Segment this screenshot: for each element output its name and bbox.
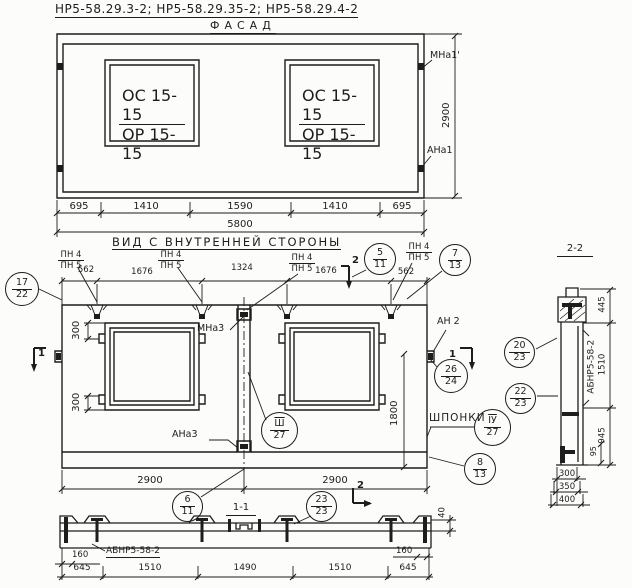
balloon-bottom: 11 [370,260,390,271]
section-1-1-heading: 1-1 [226,503,256,516]
beam-label-2-2: АБНР5-58-2 [587,332,596,402]
facade-dim-695-right: 695 [382,202,422,213]
window2-mark-top: ОС 15-15 [299,86,365,125]
facade-dim-1410-left: 1410 [126,202,166,213]
anchor-label-ana1: АНа1 [427,146,453,156]
inner-dim-1676-right: 1676 [310,267,342,276]
s11-dim-1490: 1490 [225,564,265,573]
facade-heading: ФАСАД [210,20,276,34]
offset-dim-300-top: 300 [72,315,83,345]
s22-dim-95: 95 [590,440,598,462]
balloon-III-27: Ш 27 [261,412,298,449]
sheet-title: НР5-58.29.3-2; НР5-58.29.35-2; НР5-58.29… [55,3,358,18]
balloon-IV-27: ІУ 27 [474,409,511,446]
balloon-bottom: 13 [470,470,490,481]
balloon-26-24: 26 24 [434,359,468,393]
half-width-dim-right: 2900 [315,476,355,487]
opening-height-dim: 1800 [390,393,401,433]
s22-dim-350: 350 [552,483,582,492]
s22-dim-400: 400 [552,496,582,505]
balloon-bottom: 23 [510,399,530,410]
section-2-2-heading: 2-2 [557,244,593,257]
window2-mark-bottom: ОР 15-15 [299,125,365,163]
balloon-bottom: 22 [12,290,32,301]
balloon-bottom: 27 [269,431,289,442]
section22-hatch [560,299,585,321]
balloon-top: 8 [473,458,487,470]
beam-label-1-1: АБНР5-58-2 [106,547,160,558]
balloon-23-23: 23 23 [306,491,337,522]
cut-mark-2-top: 2 [352,256,359,267]
balloon-6-11: 6 11 [172,491,203,522]
balloon-7-13: 7 13 [439,244,471,276]
inner-dim-1324: 1324 [226,264,258,273]
pn-top: ПН 4 [289,253,316,264]
facade-height-dim: 2900 [442,95,453,135]
s11-dim-645-right: 645 [388,564,428,573]
inner-dim-562-left: 562 [72,266,100,275]
window1-mark-top: ОС 15-15 [119,86,185,125]
facade-dim-1410-right: 1410 [315,202,355,213]
facade-dim-695-left: 695 [59,202,99,213]
balloon-bottom: 23 [509,353,529,364]
pn-top: ПН 4 [158,250,185,261]
balloon-bottom: 13 [445,261,465,272]
facade-dim-total: 5800 [220,220,260,231]
inner-dim-1676-left: 1676 [126,268,158,277]
pn-bottom: ПН 5 [406,253,433,263]
end-offset-right: 160 [396,547,412,556]
anchor-label-ana3: АНа3 [172,430,198,440]
drawing-sheet: НР5-58.29.3-2; НР5-58.29.35-2; НР5-58.29… [0,0,632,588]
anchor-label-mna3: МНа3 [197,324,224,334]
anchor-label-an2: АН 2 [437,317,460,327]
inner-panel-outline [55,305,434,468]
pn-mark-2: ПН 4 ПН 5 [156,250,186,271]
section11-outline [60,516,431,548]
balloon-top: 26 [441,365,461,377]
anchor-label-mna1: МНа1' [430,51,460,61]
balloon-top: 5 [373,248,387,260]
s22-dim-945: 945 [599,420,608,450]
cut-mark-2-bottom: 2 [357,481,364,492]
pn-mark-4: ПН 4 ПН 5 [404,242,434,263]
balloon-top: 17 [12,278,32,290]
pn-top: ПН 4 [58,250,85,261]
rib-height-dim: 40 [439,500,448,524]
s11-dim-1510-left: 1510 [130,564,170,573]
balloon-17-22: 17 22 [5,272,39,306]
balloon-8-13: 8 13 [464,453,496,485]
balloon-20-23: 20 23 [504,337,535,368]
window2-mark: ОС 15-15 ОР 15-15 [299,86,365,163]
balloon-bottom: 24 [441,377,461,388]
inner-dim-562-right: 562 [392,268,420,277]
window1-mark: ОС 15-15 ОР 15-15 [119,86,185,163]
s11-dim-1510-right: 1510 [320,564,360,573]
s22-dim-300: 300 [552,470,582,479]
balloon-22-23: 22 23 [505,383,536,414]
facade-outline [57,34,424,198]
balloon-5-11: 5 11 [364,243,396,275]
cut-mark-1-left: 1 [38,349,45,360]
s22-dim-1510: 1510 [599,346,608,382]
end-offset-left: 160 [72,551,88,560]
balloon-bottom: 11 [177,507,197,518]
offset-dim-300-bottom: 300 [72,387,83,417]
pn-bottom: ПН 5 [158,261,185,271]
balloon-top: 7 [448,249,462,261]
inner-view-heading: ВИД С ВНУТРЕННЕЙ СТОРОНЫ [112,236,341,250]
facade-dim-1590: 1590 [220,202,260,213]
window1-mark-bottom: ОР 15-15 [119,125,185,163]
balloon-bottom: 23 [311,507,331,518]
pn-top: ПН 4 [406,242,433,253]
s11-dim-645-left: 645 [62,564,102,573]
balloon-bottom: 27 [482,428,502,439]
s22-dim-445: 445 [599,289,608,319]
half-width-dim-left: 2900 [130,476,170,487]
